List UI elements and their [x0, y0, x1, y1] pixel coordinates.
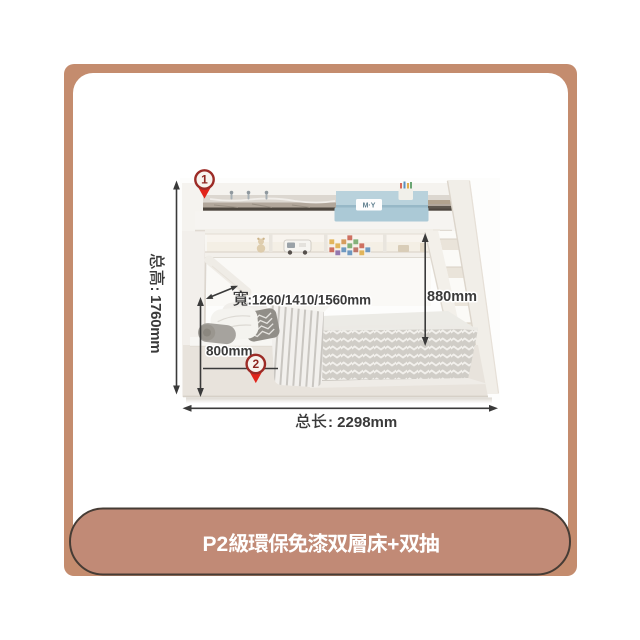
svg-text:P2: P2 — [203, 533, 229, 556]
svg-text:: 1760mm: : 1760mm — [147, 287, 164, 354]
svg-text::1260/1410/1560mm: :1260/1410/1560mm — [248, 293, 372, 308]
svg-text:800mm: 800mm — [206, 344, 253, 359]
svg-text:880mm: 880mm — [427, 289, 477, 305]
svg-text:M·Y: M·Y — [363, 203, 376, 210]
svg-text:2: 2 — [252, 357, 259, 371]
svg-text:1: 1 — [201, 173, 208, 187]
svg-text:: 2298mm: : 2298mm — [328, 414, 397, 431]
svg-text:+: + — [387, 533, 399, 556]
